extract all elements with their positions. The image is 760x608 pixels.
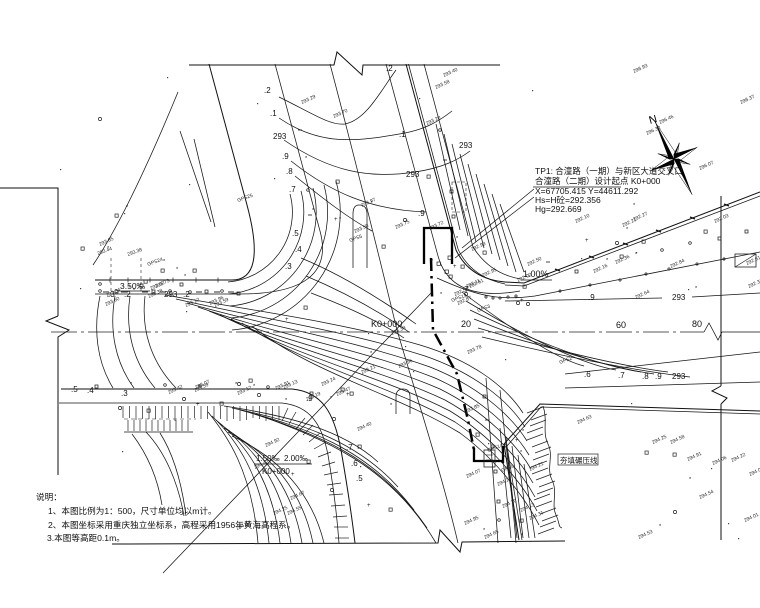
svg-text:+: + xyxy=(515,438,519,444)
svg-text:80: 80 xyxy=(692,319,702,329)
svg-text:2.00‰: 2.00‰ xyxy=(284,454,308,463)
svg-text:293: 293 xyxy=(406,170,420,179)
svg-text:+: + xyxy=(453,264,457,270)
svg-text:.5: .5 xyxy=(292,229,299,238)
svg-text:夯填碾压线: 夯填碾压线 xyxy=(560,455,598,465)
svg-text:2、本图坐标采用重庆独立坐标系，高程采用1956年黄海高程系: 2、本图坐标采用重庆独立坐标系，高程采用1956年黄海高程系。 xyxy=(48,519,295,530)
svg-text:.3: .3 xyxy=(285,262,292,271)
svg-text:.9: .9 xyxy=(282,152,289,161)
svg-text:293: 293 xyxy=(459,141,473,150)
svg-text:60: 60 xyxy=(616,320,626,330)
svg-text:TP1: 合潼路（一期）与新区大道交叉口: TP1: 合潼路（一期）与新区大道交叉口 xyxy=(535,166,683,176)
svg-text:.9: .9 xyxy=(588,293,595,302)
svg-text:20: 20 xyxy=(461,319,471,329)
svg-text:.3: .3 xyxy=(121,389,128,398)
svg-text:.7: .7 xyxy=(618,371,625,380)
svg-text:.8: .8 xyxy=(642,372,649,381)
svg-text:+: + xyxy=(585,238,589,244)
svg-text:.7: .7 xyxy=(289,185,296,194)
svg-text:.6: .6 xyxy=(351,459,358,468)
svg-text:+: + xyxy=(367,503,371,509)
svg-text:.1: .1 xyxy=(399,130,406,139)
svg-text:.4: .4 xyxy=(87,386,94,395)
svg-text:1、本图比例为1：500，尺寸单位均以m计。: 1、本图比例为1：500，尺寸单位均以m计。 xyxy=(48,505,217,516)
svg-text:K0+000: K0+000 xyxy=(262,467,290,476)
svg-text:.2: .2 xyxy=(264,86,271,95)
svg-text:.5: .5 xyxy=(71,385,78,394)
svg-text:.4: .4 xyxy=(295,245,302,254)
svg-text:.2: .2 xyxy=(386,64,393,73)
svg-text:+: + xyxy=(334,217,338,223)
svg-text:.8: .8 xyxy=(286,167,293,176)
svg-text:.9: .9 xyxy=(655,372,662,381)
svg-text:3.本图等高距0.1m。: 3.本图等高距0.1m。 xyxy=(47,532,125,543)
svg-text:.2: .2 xyxy=(124,290,131,299)
svg-text:.1: .1 xyxy=(270,109,277,118)
svg-text:+: + xyxy=(196,402,200,408)
svg-text:.9: .9 xyxy=(418,209,425,218)
svg-text:+: + xyxy=(128,284,132,290)
svg-text:.5: .5 xyxy=(356,474,363,483)
svg-text:+: + xyxy=(346,392,350,398)
svg-text:+: + xyxy=(520,298,524,304)
svg-text:293: 293 xyxy=(672,293,686,302)
svg-text:+: + xyxy=(285,317,289,323)
svg-text:说明：: 说明： xyxy=(36,491,62,502)
svg-text:合潼路（二期）设计起点 K0+000: 合潼路（二期）设计起点 K0+000 xyxy=(535,176,661,186)
svg-text:.7: .7 xyxy=(346,443,353,452)
svg-text:293: 293 xyxy=(672,372,686,381)
svg-text:+: + xyxy=(291,472,295,478)
svg-text:.6: .6 xyxy=(584,370,591,379)
svg-text:Hg=292.669: Hg=292.669 xyxy=(535,204,582,214)
svg-text:293: 293 xyxy=(273,132,287,141)
